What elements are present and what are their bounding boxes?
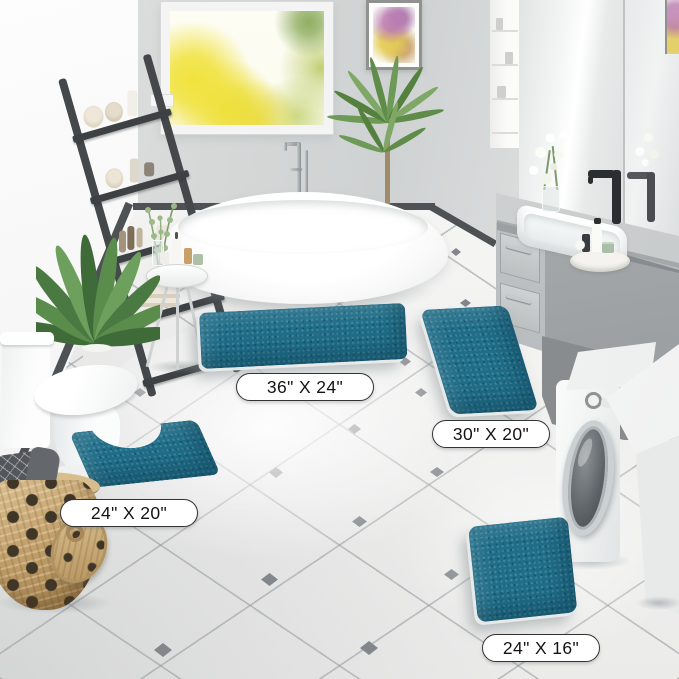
plant-leaves bbox=[36, 234, 160, 350]
size-label-24x16: 24" X 16" bbox=[482, 634, 600, 662]
size-label-30x20-text: 30" X 20" bbox=[453, 424, 529, 445]
soap-dispenser bbox=[592, 222, 602, 252]
soap-bar bbox=[575, 240, 585, 250]
toiletries-tray bbox=[570, 250, 630, 272]
table-leg bbox=[176, 284, 179, 370]
recessed-shelf-column bbox=[489, 0, 519, 148]
rolled-towel bbox=[105, 168, 123, 188]
shelf-decor bbox=[497, 86, 506, 98]
toiletry-bottle bbox=[130, 158, 139, 182]
shelf-decor bbox=[505, 52, 513, 64]
palm-fronds bbox=[327, 56, 444, 155]
shelf bbox=[492, 30, 518, 32]
sink-faucet-tip bbox=[588, 176, 593, 184]
size-label-24x16-text: 24" X 16" bbox=[503, 638, 579, 659]
tile-diamond-accent bbox=[154, 643, 172, 657]
window-view-yellow-trees bbox=[170, 11, 324, 125]
tile-diamond-accent bbox=[360, 641, 378, 655]
tub-faucet-spout-tip bbox=[284, 142, 287, 151]
cabinet-shadow bbox=[636, 596, 679, 610]
bathroom-product-photo: 36" X 24" 30" X 20" 24" X 20" 24" X 16" bbox=[0, 0, 679, 679]
white-jar bbox=[160, 252, 169, 264]
sink-faucet-body bbox=[612, 170, 621, 224]
washer-knob bbox=[585, 392, 602, 409]
bath-rug-36x24 bbox=[199, 303, 407, 369]
mirror-reflected-art bbox=[665, 0, 679, 54]
size-label-30x20: 30" X 20" bbox=[432, 420, 550, 448]
shelf bbox=[492, 132, 518, 134]
size-label-36x24-text: 36" X 24" bbox=[267, 377, 343, 398]
palm-plant bbox=[326, 56, 444, 208]
washer-door-glint bbox=[575, 437, 595, 469]
shelf bbox=[492, 98, 518, 100]
rolled-towel bbox=[83, 106, 103, 128]
size-label-24x20-text: 24" X 20" bbox=[91, 503, 167, 524]
tile-diamond-accent bbox=[460, 299, 471, 307]
toiletry-jar bbox=[144, 162, 154, 176]
size-label-36x24: 36" X 24" bbox=[236, 373, 374, 401]
mirror-reflected-faucet bbox=[647, 172, 655, 222]
mirror-reflected-flowers bbox=[629, 118, 665, 174]
lotion-bottle bbox=[172, 238, 181, 264]
bath-rug-24x16 bbox=[468, 517, 577, 623]
window bbox=[161, 2, 333, 134]
shelf bbox=[492, 64, 518, 66]
tub-rim bbox=[178, 200, 427, 254]
tile-diamond-accent bbox=[261, 573, 278, 586]
size-label-24x20: 24" X 20" bbox=[60, 499, 198, 527]
white-flowers bbox=[524, 120, 572, 192]
shelf-decor bbox=[496, 18, 503, 30]
toiletry-bottle bbox=[127, 90, 137, 116]
vanity-mirror bbox=[623, 0, 679, 248]
dispenser-pump bbox=[594, 218, 601, 224]
toilet-tank-lid bbox=[0, 332, 54, 345]
amber-bottle bbox=[184, 248, 192, 264]
green-jar bbox=[193, 254, 203, 265]
tile-diamond-accent bbox=[451, 248, 461, 256]
rolled-towel bbox=[105, 102, 123, 122]
flower-vase bbox=[542, 186, 560, 212]
wall-art-watercolor bbox=[373, 7, 415, 63]
green-candle-jar bbox=[602, 242, 614, 253]
pump-top bbox=[175, 232, 178, 239]
tub-faucet-handle bbox=[290, 168, 302, 171]
